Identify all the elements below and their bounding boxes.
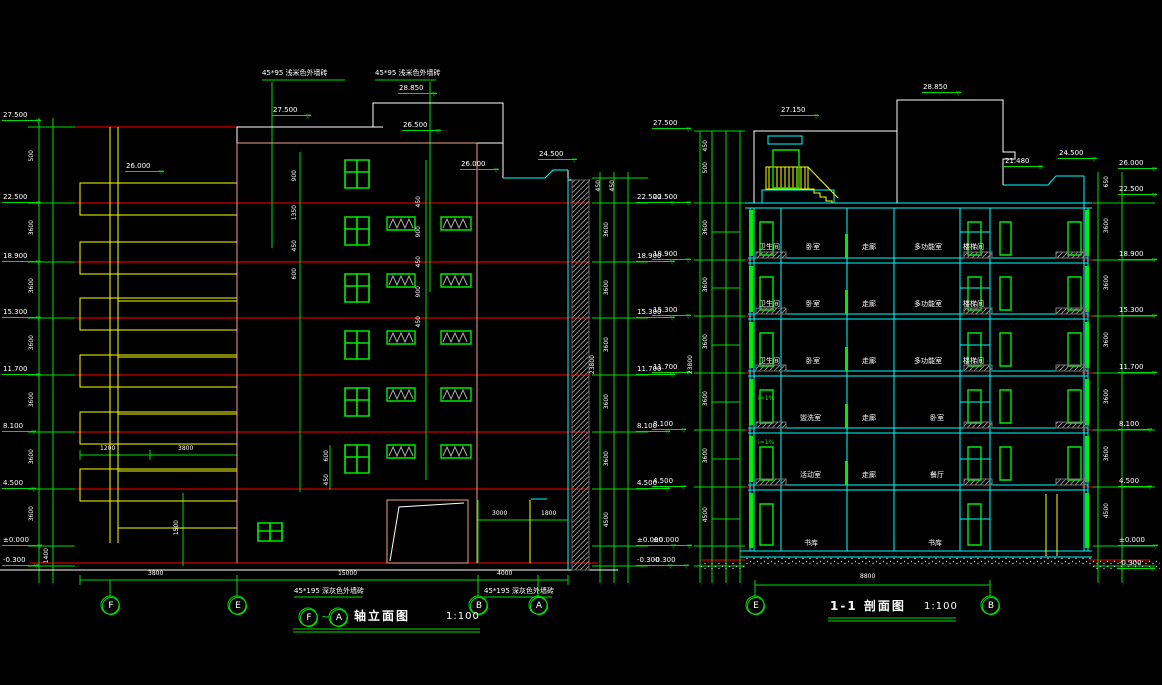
dim-text: 3600 [604,222,610,237]
dim-text: 15000 [338,571,357,577]
adjacent-building-hatch [572,180,589,570]
level-marker: 22.500 [1118,186,1157,195]
dim-text: 3600 [703,448,709,463]
elevation-balcony-bands [80,127,530,563]
dim-text: 900 [416,286,422,297]
level-marker: 15.300 [2,309,41,318]
dim-text: 3600 [29,506,35,521]
dim-text: 3600 [604,337,610,352]
dim-text: 450 [324,474,330,485]
level-marker: 11.700 [652,364,691,373]
dim-text: 3600 [1104,275,1110,290]
dim-text: 3600 [703,220,709,235]
axis-bubble-e: E [747,597,765,615]
level-marker: 15.300 [652,307,691,316]
dim-text: 1500 [174,520,180,535]
dim-text: 900 [292,170,298,181]
level-marker: 18.900 [1118,251,1157,260]
room-label: 活动室 [800,472,821,479]
level-marker: 27.150 [780,107,819,116]
dim-text: 450 [416,196,422,207]
dim-text: 1800 [541,511,556,517]
level-marker: 26.500 [402,122,441,131]
level-marker: 8.100 [652,421,686,430]
room-label: 卧室 [930,415,944,422]
room-label: 多功能室 [914,301,942,308]
cad-canvas: 27.500 22.500 18.900 15.300 11.700 8.100… [0,0,1162,685]
dim-text: 500 [703,162,709,173]
slope-note: i=1% [758,396,774,402]
room-label: 书库 [804,540,818,547]
material-note: 45*95 浅米色外墙砖 [375,70,441,77]
room-label: 走廊 [862,301,876,308]
material-note: 45*195 深灰色外墙砖 [294,588,364,595]
slope-note: i=1% [758,440,774,446]
material-note: 45*95 浅米色外墙砖 [262,70,328,77]
room-label: 卫生间 [759,301,780,308]
title-axis-start: F [300,609,318,627]
room-label: 盥洗室 [800,415,821,422]
level-marker: 11.700 [1118,364,1157,373]
dim-text: 8800 [860,574,875,580]
level-marker: 24.500 [1058,150,1097,159]
dim-text: 3000 [492,511,507,517]
room-label: 多功能室 [914,358,942,365]
level-marker: 26.000 [460,161,499,170]
room-label: 走廊 [862,415,876,422]
dim-text: 3600 [29,335,35,350]
dim-text: 1200 [100,446,115,452]
level-marker: 28.850 [922,84,961,93]
dim-text: 3600 [604,451,610,466]
level-marker: 4.500 [652,478,686,487]
elevation-green-lines [28,80,648,632]
dim-text: 450 [416,256,422,267]
dim-text: 650 [1104,176,1110,187]
dim-text: 3800 [178,446,193,452]
dim-text: 450 [596,180,602,191]
drawing-scale: 1:100 [446,612,480,622]
dim-text: 450 [703,140,709,151]
dim-text: 450 [416,316,422,327]
ground-hatch [700,557,1160,571]
room-label: 卧室 [806,301,820,308]
level-marker: 22.500 [2,194,41,203]
room-label: 走廊 [862,472,876,479]
level-marker: ±0.000 [652,537,692,546]
axis-bubble-e: E [229,597,247,615]
dim-text: 450 [610,180,616,191]
axis-bubble-b: B [982,597,1000,615]
dim-text: 450 [292,240,298,251]
room-label: 餐厅 [930,472,944,479]
level-marker: 8.100 [2,423,36,432]
dim-text: 500 [29,150,35,161]
room-label: 楼梯间 [963,244,984,251]
dim-text: 3600 [29,392,35,407]
dim-text: 3600 [1104,446,1110,461]
dim-text: 3600 [604,394,610,409]
dim-text: 3600 [703,334,709,349]
level-marker: 18.900 [652,251,691,260]
dim-text: 600 [292,268,298,279]
title-tilde: ~ [321,613,329,623]
level-marker: 4.500 [1118,478,1152,487]
title-axis-end: A [330,609,348,627]
section-doors-columns [749,150,1089,548]
room-label: 卫生间 [759,358,780,365]
elevation-railings [387,217,471,458]
dim-total: 23800 [688,355,694,374]
level-marker: 27.500 [652,120,691,129]
room-label: 书库 [928,540,942,547]
dim-text: 4500 [703,507,709,522]
room-label: 卫生间 [759,244,780,251]
dim-text: 3600 [1104,332,1110,347]
dim-text: 1350 [292,205,298,220]
dim-text: 4000 [497,571,512,577]
level-marker: -0.300 [2,557,39,566]
dim-text: 600 [324,450,330,461]
dim-text: 4500 [604,512,610,527]
dim-text: 3600 [29,220,35,235]
level-marker: 21.480 [1004,158,1043,167]
dim-text: 3600 [1104,389,1110,404]
dim-text: 900 [416,226,422,237]
elevation-floor-lines [30,127,598,563]
room-label: 多功能室 [914,244,942,251]
elevation-terrain-line [503,170,568,570]
room-label: 卧室 [806,358,820,365]
level-marker: ±0.000 [2,537,42,546]
dim-text: 3600 [1104,218,1110,233]
dim-text: 3600 [703,391,709,406]
drawing-geometry [0,0,1162,685]
dim-text: 3600 [604,280,610,295]
dim-text: 4500 [1104,503,1110,518]
dim-text: 1400 [44,548,50,563]
level-marker: -0.300 [1118,560,1155,569]
level-marker: 28.850 [398,85,437,94]
room-label: 楼梯间 [963,358,984,365]
dim-text: 3600 [29,449,35,464]
elevation-windows [258,160,369,541]
level-marker: 26.000 [1118,160,1157,169]
dim-text: 3600 [703,277,709,292]
room-label: 卧室 [806,244,820,251]
level-marker: 11.700 [2,366,41,375]
section-structure [740,136,1092,557]
axis-bubble-a: A [530,597,548,615]
level-marker: 15.300 [1118,307,1157,316]
room-label: 走廊 [862,244,876,251]
drawing-title: 轴立面图 [354,610,410,622]
level-marker: 22.500 [652,194,691,203]
room-label: 走廊 [862,358,876,365]
elevation-outline [0,103,618,570]
level-marker: 26.000 [125,163,164,172]
level-marker: 8.100 [1118,421,1152,430]
level-marker: 4.500 [2,480,36,489]
dim-text: 3600 [29,278,35,293]
level-marker: ±0.000 [1118,537,1158,546]
level-marker: 27.500 [272,107,311,116]
axis-bubble-f: F [102,597,120,615]
section-beam-hatch [756,252,1086,485]
drawing-scale: 1:100 [924,602,958,612]
level-marker: 24.500 [538,151,577,160]
dim-total: 23800 [590,355,596,374]
level-marker: 27.500 [2,112,41,121]
level-marker: 18.900 [2,253,41,262]
level-marker: -0.300 [652,557,689,566]
room-label: 楼梯间 [963,301,984,308]
dim-text: 3800 [148,571,163,577]
drawing-title: 1-1 剖面图 [830,600,906,612]
material-note: 45*195 深灰色外墙砖 [484,588,554,595]
